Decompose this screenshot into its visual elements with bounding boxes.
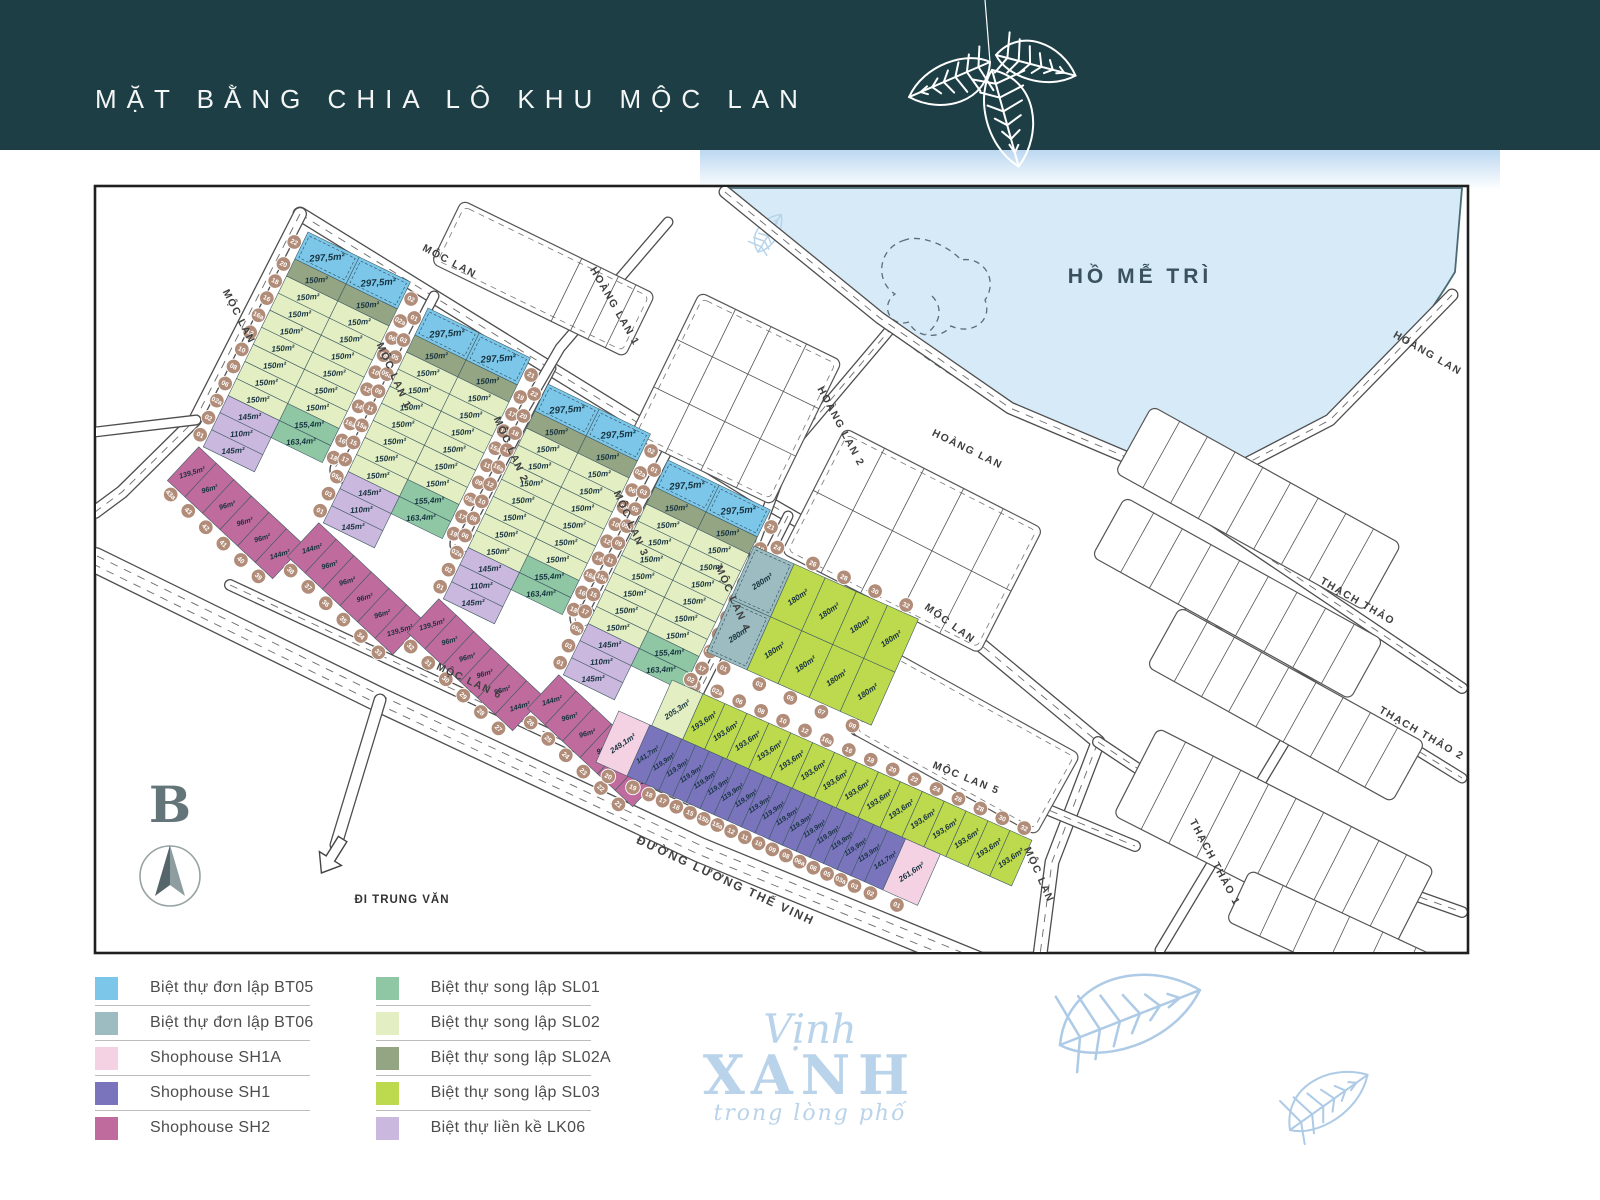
legend-label: Biệt thự song lập SL02A <box>431 1049 611 1067</box>
page: HỒ MỄ TRÌ297,5m²22297,5m²02150m²20150m²0… <box>0 0 1600 1200</box>
legend-swatch-SH2 <box>95 1117 118 1140</box>
lot-area-label: 150m² <box>716 528 740 539</box>
legend-column: Biệt thự đơn lập BT05Biệt thự đơn lập BT… <box>95 972 314 1144</box>
lot-area-label: 150m² <box>459 410 483 421</box>
legend-item-BT06: Biệt thự đơn lập BT06 <box>95 1007 314 1039</box>
lot-area-label: 150m² <box>416 368 440 379</box>
lot-area-label: 145m² <box>461 598 485 609</box>
legend: Biệt thự đơn lập BT05Biệt thự đơn lập BT… <box>95 972 611 1144</box>
lot-area-label: 150m² <box>546 554 570 565</box>
lot-area-label: 150m² <box>288 309 312 320</box>
lot-area-label: 150m² <box>579 486 603 497</box>
lot-area-label: 150m² <box>347 317 371 328</box>
lot-area-label: 150m² <box>271 343 295 354</box>
lake-label: HỒ MỄ TRÌ <box>1068 264 1213 288</box>
lot-area-label: 150m² <box>467 393 491 404</box>
lot-area-label: 145m² <box>221 446 245 457</box>
lot-area-label: 150m² <box>606 622 630 633</box>
compass-north-label: B <box>149 775 191 834</box>
lot-area-label: 150m² <box>707 545 731 556</box>
legend-item-SL02A: Biệt thự song lập SL02A <box>376 1042 611 1074</box>
lot-area-label: 150m² <box>536 444 560 455</box>
lot-area-label: 150m² <box>614 605 638 616</box>
legend-separator <box>95 1005 310 1006</box>
legend-label: Biệt thự đơn lập BT06 <box>150 1014 314 1032</box>
lot-area-label: 150m² <box>442 444 466 455</box>
legend-swatch-LK06 <box>376 1117 399 1140</box>
lot-area-label: 145m² <box>238 411 262 422</box>
lot-area-label: 150m² <box>476 376 500 387</box>
lot-area-label: 150m² <box>596 452 620 463</box>
legend-separator <box>376 1005 591 1006</box>
lot-area-label: 150m² <box>587 469 611 480</box>
legend-label: Shophouse SH1 <box>150 1084 270 1102</box>
legend-swatch-BT05 <box>95 977 118 1000</box>
lot-area-label: 150m² <box>664 503 688 514</box>
legend-item-BT05: Biệt thự đơn lập BT05 <box>95 972 314 1004</box>
legend-swatch-SL02 <box>376 1012 399 1035</box>
lot-area-label: 145m² <box>358 487 382 498</box>
legend-column: Biệt thự song lập SL01Biệt thự song lập … <box>376 972 611 1144</box>
brand-watermark: Vịnh XANH trong lòng phố <box>650 1012 970 1126</box>
lot-area-label: 150m² <box>314 385 338 396</box>
leaf-icon <box>991 30 1082 96</box>
lot-area-label: 110m² <box>470 580 493 591</box>
lot-area-label: 150m² <box>296 292 320 303</box>
lot-area-label: 150m² <box>322 368 346 379</box>
lot-area-label: 150m² <box>374 453 398 464</box>
legend-swatch-SL02A <box>376 1047 399 1070</box>
lot-area-label: 145m² <box>478 563 502 574</box>
lot-area-label: 110m² <box>230 428 253 439</box>
lot-area-label: 150m² <box>544 427 568 438</box>
legend-label: Biệt thự song lập SL01 <box>431 979 600 997</box>
lot-area-label: 150m² <box>263 360 287 371</box>
lot-area-label: 150m² <box>408 385 432 396</box>
lot-area-label: 150m² <box>486 546 510 557</box>
legend-separator <box>95 1075 310 1076</box>
lot-area-label: 150m² <box>366 470 390 481</box>
lot-area-label: 150m² <box>331 351 355 362</box>
lot-area-label: 150m² <box>424 351 448 362</box>
lot-area-label: 150m² <box>571 503 595 514</box>
legend-label: Biệt thự đơn lập BT05 <box>150 979 314 997</box>
lot-area-label: 150m² <box>356 300 380 311</box>
legend-label: Biệt thự liền kề LK06 <box>431 1119 586 1137</box>
legend-item-SH1A: Shophouse SH1A <box>95 1042 314 1074</box>
lot-area-label: 150m² <box>391 419 415 430</box>
lot-area-label: 150m² <box>434 461 458 472</box>
legend-label: Biệt thự song lập SL02 <box>431 1014 600 1032</box>
legend-swatch-SH1A <box>95 1047 118 1070</box>
lot-area-label: 150m² <box>674 613 698 624</box>
lot-area-label: 145m² <box>341 522 365 533</box>
lot-area-label: 150m² <box>656 520 680 531</box>
watermark-line3: trong lòng phố <box>650 1102 970 1126</box>
legend-swatch-BT06 <box>95 1012 118 1035</box>
lot-area-label: 150m² <box>304 275 328 286</box>
legend-swatch-SL01 <box>376 977 399 1000</box>
lot-area-label: 150m² <box>451 427 475 438</box>
legend-label: Biệt thự song lập SL03 <box>431 1084 600 1102</box>
legend-separator <box>95 1110 310 1111</box>
legend-item-SL02: Biệt thự song lập SL02 <box>376 1007 611 1039</box>
leaf-icon <box>1045 954 1212 1075</box>
leaf-icon <box>1274 1054 1381 1146</box>
lot-area-label: 150m² <box>511 495 535 506</box>
lot-area-label: 150m² <box>306 402 330 413</box>
legend-swatch-SH1 <box>95 1082 118 1105</box>
lot-area-label: 150m² <box>562 520 586 531</box>
lot-area-label: 150m² <box>691 579 715 590</box>
lot-area-label: 150m² <box>631 571 655 582</box>
header-bar: MẶT BẰNG CHIA LÔ KHU MỘC LAN <box>0 0 1600 150</box>
lot-area-label: 150m² <box>279 326 303 337</box>
legend-item-SL03: Biệt thự song lập SL03 <box>376 1077 611 1109</box>
lot-area-label: 150m² <box>648 537 672 548</box>
lot-area-label: 110m² <box>590 656 613 667</box>
lot-area-label: 110m² <box>350 504 373 515</box>
page-title: MẶT BẰNG CHIA LÔ KHU MỘC LAN <box>95 84 808 115</box>
lot-area-label: 150m² <box>554 537 578 548</box>
lot-area-label: 150m² <box>682 596 706 607</box>
legend-swatch-SL03 <box>376 1082 399 1105</box>
lot-area-label: 150m² <box>426 478 450 489</box>
legend-item-SH1: Shophouse SH1 <box>95 1077 314 1109</box>
lot-area-label: 145m² <box>581 674 605 685</box>
header-leaf-decoration <box>880 0 1200 190</box>
legend-separator <box>376 1110 591 1111</box>
lot-area-label: 150m² <box>503 512 527 523</box>
legend-item-SH2: Shophouse SH2 <box>95 1112 314 1144</box>
lot-area-label: 150m² <box>383 436 407 447</box>
lot-area-label: 150m² <box>254 377 278 388</box>
legend-separator <box>376 1040 591 1041</box>
lot-area-label: 150m² <box>623 588 647 599</box>
lot-area-label: 150m² <box>494 529 518 540</box>
legend-item-SL01: Biệt thự song lập SL01 <box>376 972 611 1004</box>
legend-label: Shophouse SH2 <box>150 1119 270 1137</box>
lot-area-label: 150m² <box>339 334 363 345</box>
watermark-line2: XANH <box>650 1048 970 1102</box>
legend-separator <box>95 1040 310 1041</box>
lot-area-label: 150m² <box>528 461 552 472</box>
legend-separator <box>376 1075 591 1076</box>
lot-area-label: 150m² <box>246 394 270 405</box>
exit-label: ĐI TRUNG VĂN <box>354 893 449 906</box>
lot-area-label: 145m² <box>598 639 622 650</box>
legend-label: Shophouse SH1A <box>150 1049 281 1067</box>
lot-area-label: 150m² <box>666 630 690 641</box>
legend-item-LK06: Biệt thự liền kề LK06 <box>376 1112 611 1144</box>
